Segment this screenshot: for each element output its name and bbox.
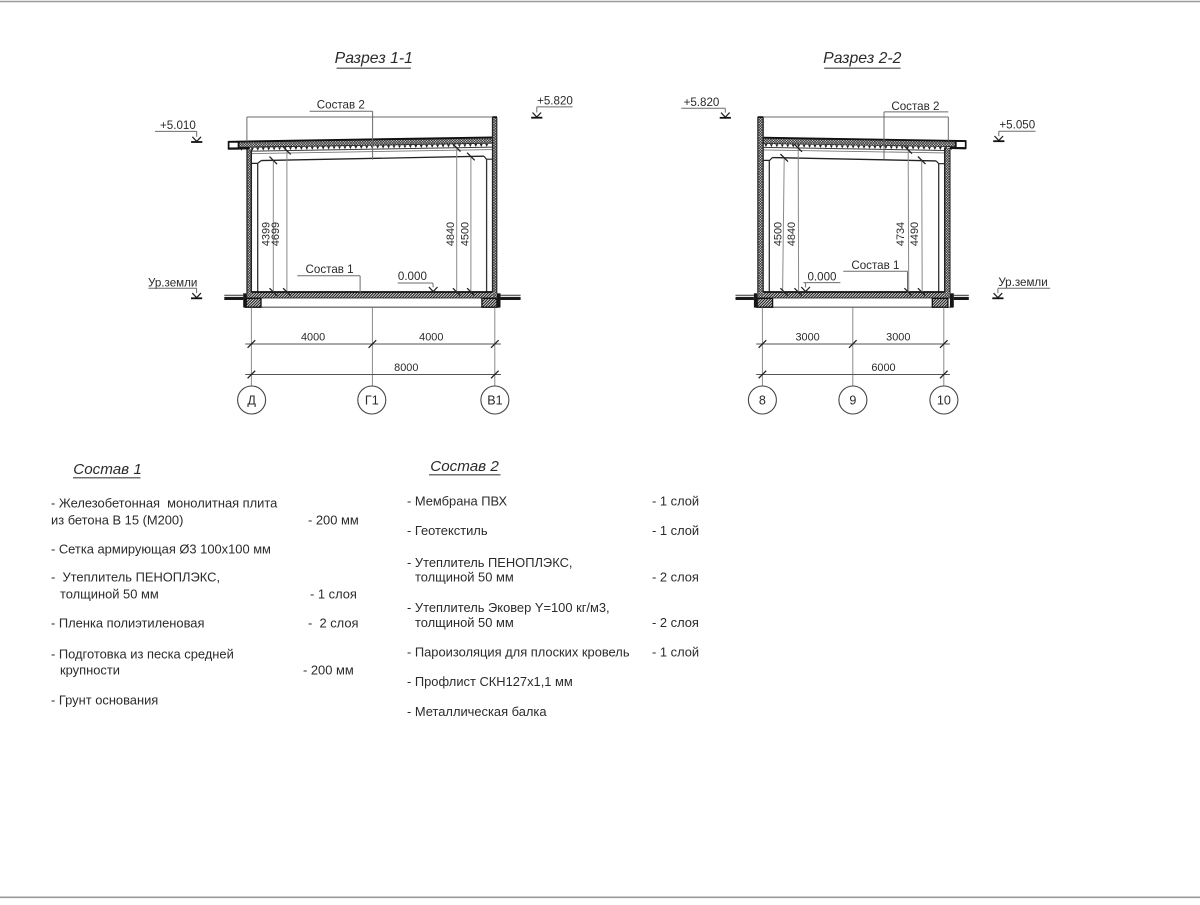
svg-text:толщиной 50 мм: толщиной 50 мм (415, 615, 514, 630)
svg-text:- Профлист СКН127х1,1 мм: - Профлист СКН127х1,1 мм (407, 674, 573, 689)
svg-text:+5.050: +5.050 (999, 118, 1035, 131)
svg-text:Разрез 1-1: Разрез 1-1 (335, 50, 413, 67)
svg-text:Ур.земли: Ур.земли (148, 276, 197, 289)
svg-text:- Утеплитель Эковер Y=100 кг/м: - Утеплитель Эковер Y=100 кг/м3, (407, 600, 610, 615)
svg-text:Д: Д (247, 394, 256, 408)
svg-text:8: 8 (759, 394, 766, 408)
svg-text:толщиной 50 мм: толщиной 50 мм (415, 569, 514, 584)
svg-text:- Железобетонная монолитная п: - Железобетонная монолитная плита (51, 495, 278, 510)
svg-text:4840: 4840 (445, 222, 457, 246)
svg-text:Состав 1: Состав 1 (73, 461, 142, 478)
svg-text:4500: 4500 (772, 222, 784, 246)
svg-text:- Пленка полиэтиленовая: - Пленка полиэтиленовая (51, 616, 204, 631)
svg-text:Г1: Г1 (365, 394, 379, 408)
svg-text:10: 10 (937, 394, 951, 408)
svg-text:- Сетка армирующая Ø3 100х100: - Сетка армирующая Ø3 100х100 мм (51, 541, 271, 556)
svg-text:- Грунт основания: - Грунт основания (51, 693, 158, 708)
svg-text:8000: 8000 (394, 362, 418, 374)
svg-text:0.000: 0.000 (807, 270, 836, 283)
svg-text:Состав 1: Состав 1 (851, 259, 899, 272)
svg-text:- Подготовка из песка средней: - Подготовка из песка средней (51, 647, 234, 662)
svg-text:9: 9 (849, 394, 856, 408)
svg-text:Ур.земли: Ур.земли (998, 276, 1047, 289)
svg-text:- 1 слой: - 1 слой (652, 494, 699, 509)
svg-text:- 2 слоя: - 2 слоя (652, 569, 699, 584)
svg-text:- 2 слоя: - 2 слоя (652, 615, 699, 630)
svg-text:- 200 мм: - 200 мм (308, 512, 359, 527)
svg-text:+5.820: +5.820 (537, 95, 573, 108)
svg-text:- 1 слоя: - 1 слоя (310, 587, 357, 602)
svg-text:4000: 4000 (301, 332, 325, 344)
svg-text:- Утеплитель ПЕНОПЛЭКС,: - Утеплитель ПЕНОПЛЭКС, (51, 569, 220, 584)
svg-text:3000: 3000 (795, 332, 819, 344)
svg-text:+5.010: +5.010 (160, 119, 196, 132)
svg-text:из бетона В 15 (М200): из бетона В 15 (М200) (51, 512, 183, 527)
svg-text:- 1 слой: - 1 слой (652, 645, 699, 660)
svg-text:4490: 4490 (909, 222, 921, 246)
svg-text:- Мембрана ПВХ: - Мембрана ПВХ (407, 494, 508, 509)
svg-text:- 1 слой: - 1 слой (652, 523, 699, 538)
svg-text:4734: 4734 (895, 222, 907, 246)
svg-text:крупности: крупности (60, 663, 120, 678)
svg-text:В1: В1 (487, 394, 502, 408)
svg-text:- Пароизоляция для плоских кро: - Пароизоляция для плоских кровель (407, 645, 630, 660)
svg-text:4699: 4699 (270, 222, 282, 246)
svg-text:Состав 2: Состав 2 (891, 100, 939, 113)
svg-text:- 200 мм: - 200 мм (303, 663, 354, 678)
svg-text:- Утеплитель ПЕНОПЛЭКС,: - Утеплитель ПЕНОПЛЭКС, (407, 555, 572, 570)
svg-text:- 2 слоя: - 2 слоя (308, 616, 358, 631)
svg-text:Состав 2: Состав 2 (317, 99, 365, 112)
svg-text:Состав 2: Состав 2 (430, 458, 499, 475)
svg-text:4500: 4500 (460, 222, 472, 246)
svg-text:3000: 3000 (886, 332, 910, 344)
svg-text:4840: 4840 (786, 222, 798, 246)
svg-text:0.000: 0.000 (398, 270, 427, 283)
svg-text:- Геотекстиль: - Геотекстиль (407, 523, 488, 538)
svg-text:+5.820: +5.820 (684, 96, 720, 109)
svg-text:4000: 4000 (419, 332, 443, 344)
svg-text:Состав 1: Состав 1 (306, 263, 354, 276)
svg-text:- Металлическая балка: - Металлическая балка (407, 704, 547, 719)
svg-text:6000: 6000 (871, 362, 895, 374)
svg-text:Разрез 2-2: Разрез 2-2 (823, 50, 901, 67)
svg-text:толщиной 50 мм: толщиной 50 мм (60, 587, 159, 602)
